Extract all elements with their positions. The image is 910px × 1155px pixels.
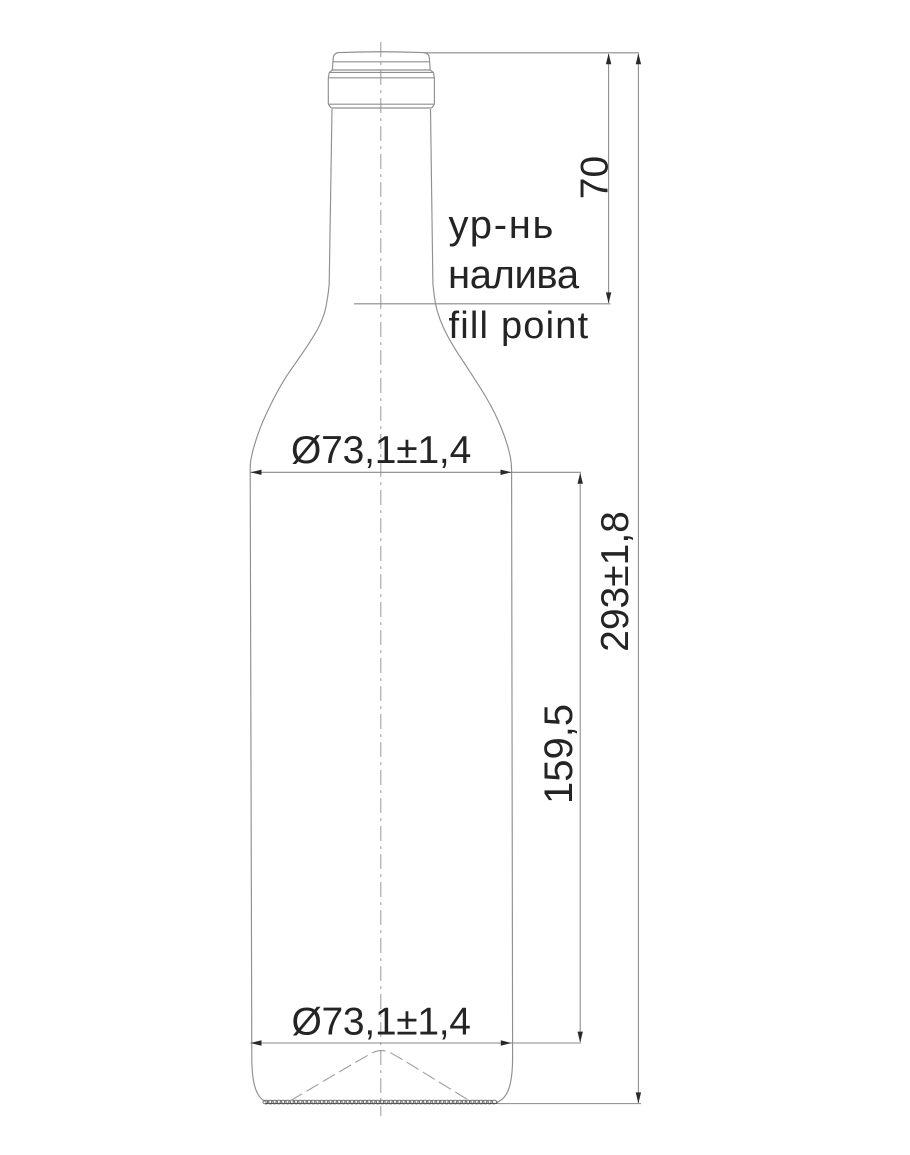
svg-text:ур-нь: ур-нь [449, 203, 556, 247]
svg-text:Ø73,1±1,4: Ø73,1±1,4 [292, 1001, 471, 1044]
svg-text:70: 70 [574, 156, 617, 199]
svg-text:налива: налива [448, 253, 580, 297]
svg-text:fill point: fill point [449, 305, 590, 347]
svg-text:159,5: 159,5 [537, 704, 581, 804]
svg-text:Ø73,1±1,4: Ø73,1±1,4 [291, 429, 471, 472]
svg-text:293±1,8: 293±1,8 [594, 511, 637, 652]
